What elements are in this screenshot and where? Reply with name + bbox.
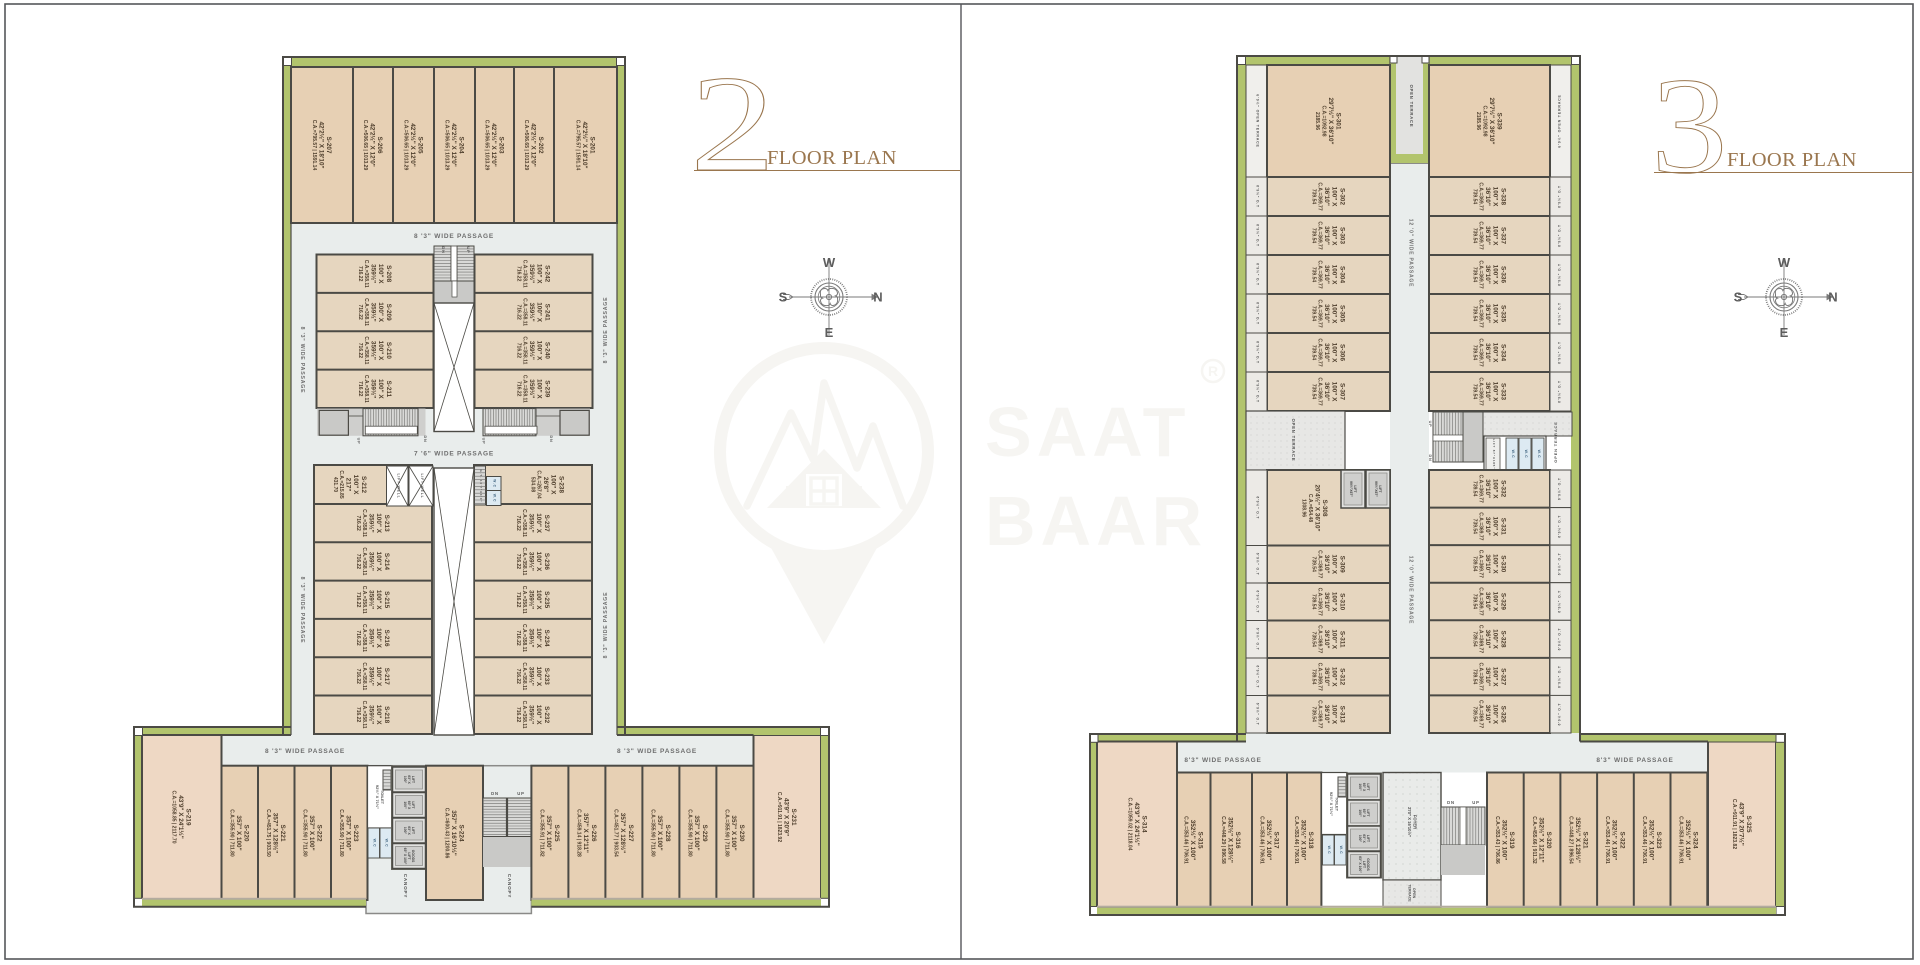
svg-text:S-218: S-218: [383, 706, 390, 723]
svg-text:716.22: 716.22: [515, 592, 521, 608]
svg-text:S-311: S-311: [1338, 631, 1345, 648]
svg-text:36'10": 36'10": [1484, 343, 1491, 362]
svg-text:S-331: S-331: [1499, 518, 1506, 535]
svg-text:C.A.=355.90 | 711.80: C.A.=355.90 | 711.80: [687, 809, 693, 857]
svg-text:270" X 16'10½": 270" X 16'10½": [1407, 807, 1412, 837]
svg-text:739.54: 739.54: [1471, 706, 1477, 722]
svg-text:C.A.=267.04: C.A.=267.04: [536, 470, 542, 498]
svg-text:36'10": 36'10": [1484, 554, 1491, 573]
svg-text:359½": 359½": [528, 379, 536, 398]
svg-text:C.A.=369.77: C.A.=369.77: [1317, 663, 1323, 691]
svg-text:352½" X 100": 352½" X 100": [1647, 820, 1655, 861]
svg-text:C.A.=369.77: C.A.=369.77: [1317, 377, 1323, 405]
svg-text:6'9½" O.T: 6'9½" O.T: [1558, 224, 1562, 247]
svg-text:359½": 359½": [368, 705, 376, 724]
svg-text:100" X: 100" X: [1331, 629, 1338, 649]
svg-text:S-333: S-333: [1499, 383, 1506, 400]
svg-text:DN: DN: [441, 246, 446, 253]
svg-text:S-204: S-204: [457, 136, 464, 153]
svg-text:C.A.=358.11: C.A.=358.11: [522, 375, 528, 403]
svg-text:S-228: S-228: [664, 824, 671, 841]
svg-text:R: R: [1208, 363, 1218, 379]
svg-text:C.A.=369.77: C.A.=369.77: [1478, 550, 1484, 578]
svg-text:S-307: S-307: [1338, 383, 1345, 400]
svg-text:S-234: S-234: [543, 629, 550, 646]
svg-text:C.A.=654.48: C.A.=654.48: [1307, 494, 1313, 522]
svg-text:S-238: S-238: [557, 476, 564, 493]
svg-text:716.22: 716.22: [515, 343, 521, 359]
svg-text:C.A.=459.14 | 918.28: C.A.=459.14 | 918.28: [576, 809, 582, 857]
svg-text:716.22: 716.22: [355, 669, 361, 685]
svg-text:S-214: S-214: [383, 553, 390, 570]
svg-text:42'2½" X 12'0": 42'2½" X 12'0": [368, 123, 376, 167]
svg-text:92½" X 71½": 92½" X 71½": [375, 785, 380, 809]
svg-text:100": 100": [403, 801, 407, 809]
svg-text:352½" X 100": 352½" X 100": [1611, 820, 1619, 861]
svg-text:2: 2: [690, 47, 776, 201]
svg-text:S-230: S-230: [738, 824, 745, 841]
svg-text:C.A.=369.77: C.A.=369.77: [1478, 662, 1484, 690]
svg-text:SAAT: SAAT: [985, 393, 1190, 471]
svg-text:100" X: 100" X: [535, 628, 542, 648]
svg-text:C.A.=451.75 | 903.50: C.A.=451.75 | 903.50: [265, 809, 271, 857]
svg-text:C.A.=369.77: C.A.=369.77: [1478, 587, 1484, 615]
svg-text:100" X: 100" X: [1331, 382, 1338, 402]
svg-text:100" X: 100" X: [1492, 265, 1499, 285]
svg-text:6'9½" O.T: 6'9½" O.T: [1558, 552, 1562, 575]
svg-text:36'10": 36'10": [1323, 187, 1330, 206]
svg-text:S-217: S-217: [383, 668, 390, 685]
svg-text:E: E: [825, 325, 834, 340]
svg-text:DN: DN: [1428, 454, 1432, 461]
svg-text:359½": 359½": [528, 667, 536, 686]
svg-text:36'10": 36'10": [1323, 304, 1330, 323]
svg-text:100" X: 100" X: [1331, 265, 1338, 285]
svg-text:29'7½" X 36'10": 29'7½" X 36'10": [1488, 97, 1496, 144]
svg-text:6'9½" O.T: 6'9½" O.T: [1256, 263, 1260, 286]
svg-text:352½" X 12'11": 352½" X 12'11": [1537, 817, 1545, 862]
svg-text:739.54: 739.54: [1310, 384, 1316, 400]
svg-text:359½": 359½": [528, 628, 536, 647]
svg-text:UP: UP: [357, 438, 361, 445]
svg-text:739.54: 739.54: [1310, 189, 1316, 205]
svg-text:36'10": 36'10": [1323, 265, 1330, 284]
svg-text:739.54: 739.54: [1471, 556, 1477, 572]
svg-text:6'9½" O.T: 6'9½" O.T: [1256, 553, 1260, 576]
svg-text:C.A.=911.91 | 1823.82: C.A.=911.91 | 1823.82: [1731, 799, 1737, 849]
svg-text:C.A.=369.77: C.A.=369.77: [1478, 512, 1484, 540]
svg-text:6'9½" O.T: 6'9½" O.T: [1256, 628, 1260, 651]
svg-text:S-323: S-323: [1655, 831, 1662, 848]
svg-text:LIFT WELL: LIFT WELL: [420, 474, 424, 499]
svg-text:C.A.=355.90 | 711.80: C.A.=355.90 | 711.80: [724, 809, 730, 857]
svg-text:359½": 359½": [370, 341, 378, 360]
svg-text:100" X: 100" X: [1331, 554, 1338, 574]
svg-text:S-319: S-319: [1508, 831, 1515, 848]
svg-text:6'9½" O.T: 6'9½" O.T: [1256, 590, 1260, 613]
svg-text:S-339: S-339: [1496, 112, 1503, 129]
svg-text:716.22: 716.22: [357, 304, 363, 320]
svg-text:CANOPY: CANOPY: [507, 874, 512, 898]
svg-text:6'9½" O.T: 6'9½" O.T: [1558, 703, 1562, 726]
svg-text:42'2½" X 12'0": 42'2½" X 12'0": [490, 123, 498, 167]
svg-text:UP: UP: [517, 791, 524, 796]
svg-text:716.22: 716.22: [357, 266, 363, 282]
svg-text:N: N: [1828, 290, 1837, 305]
svg-text:6'9½" O.T: 6'9½" O.T: [1558, 185, 1562, 208]
svg-text:100" X: 100" X: [1331, 343, 1338, 363]
svg-text:716.22: 716.22: [515, 630, 521, 646]
svg-text:357" X 100": 357" X 100": [308, 815, 315, 850]
svg-text:357" X 100": 357" X 100": [693, 815, 700, 850]
svg-text:100" X: 100" X: [1331, 704, 1338, 724]
svg-text:C.A.=369.77: C.A.=369.77: [1478, 475, 1484, 503]
svg-text:S-312: S-312: [1338, 668, 1345, 685]
svg-text:C.A.=506.65 | 1013.29: C.A.=506.65 | 1013.29: [523, 120, 529, 171]
svg-text:100" X: 100" X: [1331, 592, 1338, 612]
svg-text:C.A.=353.46 | 706.91: C.A.=353.46 | 706.91: [1293, 816, 1299, 864]
svg-text:C.A.=600.43 | 1200.86: C.A.=600.43 | 1200.86: [443, 808, 449, 859]
svg-text:739.54: 739.54: [1310, 594, 1316, 610]
svg-text:352½" X 128½": 352½" X 128½": [1574, 817, 1582, 863]
svg-text:100" X: 100" X: [1331, 667, 1338, 687]
svg-text:100" X: 100" X: [1492, 592, 1499, 612]
svg-text:100" X: 100" X: [1331, 304, 1338, 324]
svg-text:357" X 100": 357" X 100": [656, 815, 663, 850]
svg-text:C.A.=355.91 | 711.82: C.A.=355.91 | 711.82: [539, 809, 545, 857]
svg-text:6'9½" O.T: 6'9½" O.T: [1558, 263, 1562, 286]
svg-text:E: E: [1780, 325, 1789, 340]
svg-text:C.A.=369.77: C.A.=369.77: [1317, 221, 1323, 249]
svg-text:C.A.=358.11: C.A.=358.11: [361, 509, 367, 537]
svg-text:UP: UP: [466, 246, 471, 253]
svg-text:S-314: S-314: [1141, 815, 1148, 832]
svg-text:LIFT WELL: LIFT WELL: [397, 474, 401, 499]
svg-text:100" X: 100" X: [375, 628, 382, 648]
svg-text:S-208: S-208: [385, 265, 392, 282]
svg-text:36'10": 36'10": [1323, 705, 1330, 724]
svg-text:100" X: 100" X: [1492, 304, 1499, 324]
svg-text:716.22: 716.22: [357, 343, 363, 359]
svg-text:S-205: S-205: [416, 136, 423, 153]
svg-text:6'9½" O.T: 6'9½" O.T: [1256, 380, 1260, 403]
svg-text:W.C: W.C: [1339, 846, 1343, 855]
svg-text:S-213: S-213: [383, 515, 390, 532]
svg-text:6'9½" O.T: 6'9½" O.T: [1256, 185, 1260, 208]
svg-text:8 '3" WIDE PASSAGE: 8 '3" WIDE PASSAGE: [299, 327, 305, 394]
svg-text:100" X: 100" X: [535, 552, 542, 572]
svg-text:W.C: W.C: [1511, 450, 1515, 459]
svg-text:100": 100": [403, 827, 407, 835]
svg-text:100" X: 100" X: [375, 705, 382, 725]
svg-text:S-335: S-335: [1499, 305, 1506, 322]
svg-text:100" X: 100" X: [535, 666, 542, 686]
svg-text:S-306: S-306: [1338, 344, 1345, 361]
svg-text:100" X: 100" X: [377, 341, 384, 361]
svg-text:217": 217": [345, 478, 352, 492]
svg-text:352½" X 100": 352½" X 100": [1265, 820, 1273, 861]
svg-text:C.A.=353.43 | 706.86: C.A.=353.43 | 706.86: [1494, 816, 1500, 864]
svg-text:C.A.=358.11: C.A.=358.11: [521, 662, 527, 690]
svg-text:100": 100": [1358, 809, 1362, 817]
svg-text:OPEN TERRACE: OPEN TERRACE: [1553, 421, 1558, 462]
svg-text:100" X: 100" X: [377, 379, 384, 399]
svg-text:C.A.=369.77: C.A.=369.77: [1317, 260, 1323, 288]
svg-text:6'9½" O.T: 6'9½" O.T: [1558, 380, 1562, 403]
svg-text:S-231: S-231: [790, 808, 797, 825]
svg-text:36'10": 36'10": [1323, 630, 1330, 649]
svg-text:C.A.=358.11: C.A.=358.11: [522, 298, 528, 326]
svg-text:100" X: 100" X: [1492, 667, 1499, 687]
svg-text:36'10": 36'10": [1484, 382, 1491, 401]
svg-text:C.A.=358.11: C.A.=358.11: [361, 586, 367, 614]
svg-text:29'7½" X 36'10": 29'7½" X 36'10": [1327, 97, 1335, 144]
svg-text:C.A.=353.46 | 706.91: C.A.=353.46 | 706.91: [1183, 816, 1189, 864]
svg-text:100" X: 100" X: [375, 666, 382, 686]
svg-text:6'9½" O.T: 6'9½" O.T: [1256, 302, 1260, 325]
svg-text:C.A.=369.77: C.A.=369.77: [1478, 299, 1484, 327]
svg-text:S-201: S-201: [588, 136, 595, 153]
svg-text:42'2½" X 18'10": 42'2½" X 18'10": [317, 121, 325, 168]
svg-text:DN: DN: [1447, 800, 1455, 805]
svg-text:C.A.=506.65 | 1013.29: C.A.=506.65 | 1013.29: [362, 120, 368, 171]
svg-text:S-322: S-322: [1618, 831, 1625, 848]
svg-text:359½": 359½": [528, 514, 536, 533]
svg-text:C.A.=369.77: C.A.=369.77: [1317, 550, 1323, 578]
svg-text:C.A.=353.46 | 706.91: C.A.=353.46 | 706.91: [1258, 816, 1264, 864]
svg-text:100" X: 100" X: [536, 302, 543, 322]
svg-text:UP: UP: [1428, 421, 1432, 428]
svg-text:6'9½" O.T: 6'9½" O.T: [1256, 665, 1260, 688]
svg-text:S-209: S-209: [385, 304, 392, 321]
svg-text:FOYER: FOYER: [1412, 815, 1417, 829]
svg-text:739.54: 739.54: [1471, 669, 1477, 685]
svg-text:C.A.=355.90 | 711.80: C.A.=355.90 | 711.80: [650, 809, 656, 857]
svg-text:S-219: S-219: [185, 808, 192, 825]
svg-text:S-332: S-332: [1499, 480, 1506, 497]
svg-text:357" X 100": 357" X 100": [730, 815, 737, 850]
svg-text:716.22: 716.22: [357, 381, 363, 397]
svg-text:C.A.=358.11: C.A.=358.11: [521, 701, 527, 729]
svg-text:6'9½" O.T: 6'9½" O.T: [1558, 341, 1562, 364]
svg-text:100" X: 100" X: [535, 590, 542, 610]
svg-text:S-236: S-236: [543, 553, 550, 570]
svg-text:716.22: 716.22: [355, 707, 361, 723]
svg-text:S-239: S-239: [543, 380, 550, 397]
svg-text:100" X: 100" X: [1331, 226, 1338, 246]
svg-text:S-221: S-221: [279, 824, 286, 841]
svg-text:FLOOR PLAN: FLOOR PLAN: [1727, 149, 1857, 171]
svg-text:100" X: 100" X: [1492, 382, 1499, 402]
svg-text:359½": 359½": [528, 341, 536, 360]
svg-text:36'10": 36'10": [1484, 517, 1491, 536]
svg-text:6'9½" O.T: 6'9½" O.T: [1558, 627, 1562, 650]
svg-text:C.A.=1058.85 | 2117.70: C.A.=1058.85 | 2117.70: [171, 791, 177, 844]
svg-text:359½": 359½": [368, 552, 376, 571]
svg-text:C.A.=358.11: C.A.=358.11: [521, 547, 527, 575]
svg-text:S-338: S-338: [1499, 188, 1506, 205]
svg-text:S-237: S-237: [543, 515, 550, 532]
svg-text:S-226: S-226: [590, 824, 597, 841]
svg-text:739.54: 739.54: [1471, 267, 1477, 283]
svg-text:S-329: S-329: [1499, 593, 1506, 610]
svg-text:6'9½" O.T: 6'9½" O.T: [1558, 515, 1562, 538]
svg-text:C.A.=358.11: C.A.=358.11: [363, 260, 369, 288]
svg-text:S-215: S-215: [383, 591, 390, 608]
svg-text:36'10": 36'10": [1484, 479, 1491, 498]
svg-text:DN: DN: [423, 435, 427, 442]
svg-text:S-223: S-223: [352, 824, 359, 841]
svg-text:S-235: S-235: [543, 591, 550, 608]
svg-text:716.22: 716.22: [355, 630, 361, 646]
svg-text:100" X: 100" X: [375, 590, 382, 610]
svg-text:CANOPY: CANOPY: [403, 874, 408, 898]
svg-text:8'3" WIDE PASSAGE: 8'3" WIDE PASSAGE: [1596, 757, 1673, 764]
svg-text:S-327: S-327: [1499, 668, 1506, 685]
svg-text:W.C: W.C: [1537, 450, 1541, 459]
svg-text:100" X: 100" X: [1492, 343, 1499, 363]
svg-text:S-242: S-242: [543, 265, 550, 282]
svg-text:S: S: [1734, 290, 1743, 305]
svg-text:357" X 100": 357" X 100": [345, 815, 352, 850]
svg-text:739.54: 739.54: [1471, 594, 1477, 610]
svg-text:S-220: S-220: [243, 824, 250, 841]
svg-text:W.C: W.C: [373, 839, 377, 848]
svg-text:C.A.=455.66 | 911.32: C.A.=455.66 | 911.32: [1531, 816, 1537, 864]
svg-text:S-202: S-202: [537, 136, 544, 153]
svg-text:92½" X 71½": 92½" X 71½": [1329, 792, 1334, 816]
svg-text:739.54: 739.54: [1310, 228, 1316, 244]
svg-text:36'10": 36'10": [1484, 592, 1491, 611]
svg-text:C.A.=358.11: C.A.=358.11: [363, 336, 369, 364]
svg-text:8 '3" WIDE PASSAGE: 8 '3" WIDE PASSAGE: [617, 748, 697, 755]
svg-text:99½"X67": 99½"X67": [1349, 481, 1353, 497]
svg-text:26'8": 26'8": [542, 477, 549, 492]
svg-text:S-308: S-308: [1321, 499, 1328, 516]
svg-text:36'10": 36'10": [1484, 304, 1491, 323]
svg-text:716.22: 716.22: [515, 515, 521, 531]
svg-text:42'2½" X 12'0": 42'2½" X 12'0": [409, 123, 417, 167]
svg-text:100": 100": [1358, 783, 1362, 791]
svg-text:W.C: W.C: [493, 494, 497, 502]
svg-text:6'9½" O.T: 6'9½" O.T: [1558, 590, 1562, 613]
svg-text:99½"X67": 99½"X67": [1374, 481, 1378, 497]
svg-text:6'9½" O.T: 6'9½" O.T: [1256, 224, 1260, 247]
svg-text:359½": 359½": [528, 552, 536, 571]
svg-text:359½": 359½": [528, 264, 536, 283]
svg-text:W: W: [823, 255, 836, 270]
svg-text:OPEN TERRACE: OPEN TERRACE: [1409, 85, 1414, 128]
svg-text:S-212: S-212: [360, 476, 367, 493]
svg-text:357" X 100": 357" X 100": [545, 815, 552, 850]
svg-text:352½" X 100": 352½" X 100": [1684, 820, 1692, 861]
svg-text:357" X 100": 357" X 100": [235, 815, 242, 850]
svg-text:C.A.=353.46 | 706.91: C.A.=353.46 | 706.91: [1604, 816, 1610, 864]
svg-text:739.54: 739.54: [1471, 384, 1477, 400]
svg-text:8 '3" WIDE PASSAGE: 8 '3" WIDE PASSAGE: [299, 577, 305, 644]
svg-text:6'9½" O.T: 6'9½" O.T: [1558, 302, 1562, 325]
svg-text:100" X: 100" X: [1492, 226, 1499, 246]
svg-text:C.A.=506.65 | 1013.29: C.A.=506.65 | 1013.29: [483, 120, 489, 171]
svg-text:100" X: 100" X: [1492, 629, 1499, 649]
svg-text:S-233: S-233: [543, 668, 550, 685]
svg-text:36'10": 36'10": [1484, 630, 1491, 649]
svg-text:36'10": 36'10": [1484, 226, 1491, 245]
svg-text:43'9" X 24'1½": 43'9" X 24'1½": [177, 795, 185, 839]
svg-text:C.A.=369.77: C.A.=369.77: [1478, 377, 1484, 405]
svg-text:S-240: S-240: [543, 342, 550, 359]
svg-text:716.22: 716.22: [515, 304, 521, 320]
svg-text:C.A.=1059.02 | 2118.04: C.A.=1059.02 | 2118.04: [1127, 798, 1133, 851]
svg-text:739.54: 739.54: [1471, 481, 1477, 497]
svg-text:716.22: 716.22: [355, 515, 361, 531]
svg-text:S-241: S-241: [543, 304, 550, 321]
svg-text:100" X: 100" X: [1492, 479, 1499, 499]
svg-text:739.54: 739.54: [1310, 632, 1316, 648]
svg-text:C.A.=369.77: C.A.=369.77: [1317, 625, 1323, 653]
svg-text:C.A.=369.77: C.A.=369.77: [1478, 260, 1484, 288]
svg-text:100" X: 100" X: [536, 264, 543, 284]
svg-text:100" X: 100" X: [1492, 516, 1499, 536]
svg-text:716.22: 716.22: [515, 707, 521, 723]
svg-text:100" X: 100" X: [375, 513, 382, 533]
svg-text:36'10": 36'10": [1323, 343, 1330, 362]
svg-text:716.22: 716.22: [515, 381, 521, 397]
svg-text:C.A.=358.11: C.A.=358.11: [361, 547, 367, 575]
svg-text:S-206: S-206: [376, 136, 383, 153]
svg-text:36'10": 36'10": [1484, 187, 1491, 206]
svg-text:S-336: S-336: [1499, 266, 1506, 283]
svg-text:739.54: 739.54: [1310, 669, 1316, 685]
svg-text:100": 100": [403, 776, 407, 784]
svg-text:6'9½" O.T: 6'9½" O.T: [1256, 341, 1260, 364]
svg-text:357" X 12'11": 357" X 12'11": [582, 813, 589, 853]
svg-text:716.22: 716.22: [515, 554, 521, 570]
svg-text:2185.96: 2185.96: [1314, 112, 1320, 130]
svg-text:S-207: S-207: [325, 136, 332, 153]
svg-text:FLOOR PLAN: FLOOR PLAN: [767, 147, 897, 169]
svg-text:LIFT 87"X185": LIFT 87"X185": [1492, 439, 1496, 470]
svg-text:716.22: 716.22: [515, 266, 521, 282]
svg-text:C.A.=369.77: C.A.=369.77: [1317, 700, 1323, 728]
svg-text:S-224: S-224: [457, 824, 464, 841]
svg-text:C.A.=448.29 | 896.58: C.A.=448.29 | 896.58: [1220, 816, 1226, 864]
svg-text:C.A.=369.77: C.A.=369.77: [1478, 182, 1484, 210]
svg-text:716.22: 716.22: [355, 554, 361, 570]
svg-text:534.08: 534.08: [529, 477, 535, 493]
svg-text:S-310: S-310: [1338, 593, 1345, 610]
svg-text:7 '6" WIDE PASSAGE: 7 '6" WIDE PASSAGE: [414, 451, 494, 458]
svg-text:36'10": 36'10": [1323, 226, 1330, 245]
svg-text:100" X: 100" X: [377, 302, 384, 322]
svg-text:S-225: S-225: [553, 824, 560, 841]
svg-text:DN: DN: [491, 791, 499, 796]
svg-text:359½": 359½": [368, 628, 376, 647]
svg-text:W.C: W.C: [385, 839, 389, 848]
svg-text:42'2½" X 12'0": 42'2½" X 12'0": [529, 123, 537, 167]
svg-text:357" X 128½": 357" X 128½": [272, 813, 280, 854]
svg-text:UP: UP: [1472, 800, 1479, 805]
svg-text:S-334: S-334: [1499, 344, 1506, 361]
svg-text:6'9½" OPEN TERRACE: 6'9½" OPEN TERRACE: [1558, 94, 1562, 148]
svg-text:716.22: 716.22: [515, 669, 521, 685]
svg-text:S-337: S-337: [1499, 227, 1506, 244]
svg-text:S-328: S-328: [1499, 630, 1506, 647]
svg-text:C.A.=369.77: C.A.=369.77: [1317, 588, 1323, 616]
svg-text:BAAR: BAAR: [985, 482, 1207, 560]
svg-text:S-222: S-222: [316, 824, 323, 841]
svg-text:12 '0" WIDE PASSAGE: 12 '0" WIDE PASSAGE: [1408, 219, 1414, 287]
